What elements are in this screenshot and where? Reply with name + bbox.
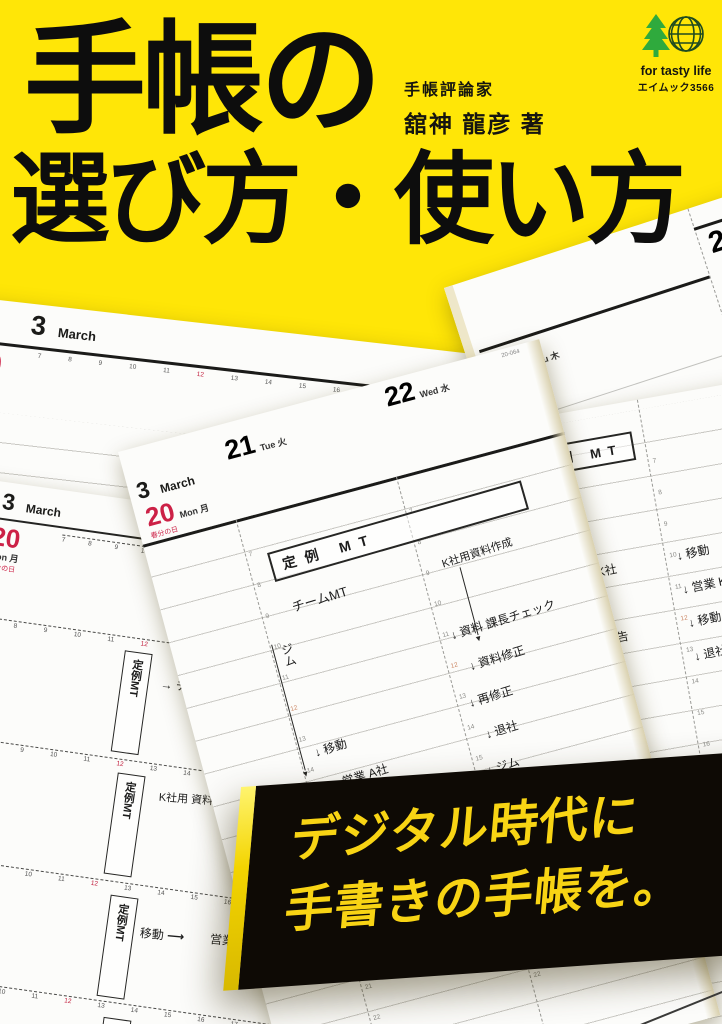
entry-text: 定例MT xyxy=(110,902,131,942)
hour-tick: 16 xyxy=(702,740,710,748)
hour-tick: 11 xyxy=(107,636,115,644)
hour-tick: 15 xyxy=(190,894,198,902)
hour-tick: 11 xyxy=(83,756,91,764)
hour-tick: 8 xyxy=(88,540,93,547)
hour-tick: 7 xyxy=(61,536,66,543)
hour-tick: 13 xyxy=(97,1002,105,1010)
schedule-entry: 営業 K社 xyxy=(681,558,722,597)
month-name: March xyxy=(25,501,62,520)
hour-tick: 15 xyxy=(697,709,705,717)
hour-tick: 14 xyxy=(157,889,165,897)
month-name: March xyxy=(57,325,97,344)
hour-tick: 12 xyxy=(196,371,204,379)
handwritten-meeting-box: 定例MT xyxy=(104,772,146,877)
book-title-line2: 選び方・使い方 xyxy=(10,148,682,253)
hour-tick: 10 xyxy=(50,751,58,759)
hour-tick: 11 xyxy=(281,673,290,682)
hour-tick: 10 xyxy=(73,631,81,639)
hour-tick: 14 xyxy=(264,379,272,387)
hour-tick: 15 xyxy=(298,382,306,390)
hour-tick: 13 xyxy=(230,375,238,383)
hour-tick: 10 xyxy=(129,363,137,371)
day-number: 20 xyxy=(0,523,23,553)
hour-tick: 7 xyxy=(652,457,660,465)
hour-tick: 17 xyxy=(230,1021,238,1024)
handwritten-meeting-box: 定例MT xyxy=(111,650,153,755)
book-cover: 3 March 78910111213141516171819202122 20… xyxy=(0,0,722,1024)
hour-tick: 11 xyxy=(31,993,39,1001)
schedule-entry: 退社 xyxy=(693,625,722,664)
hour-tick: 16 xyxy=(197,1016,205,1024)
handwritten-meeting-box: 定例MT xyxy=(88,1017,131,1024)
hour-tick: 13 xyxy=(124,885,132,893)
entry-text: 移動 xyxy=(139,924,185,945)
hour-tick: 10 xyxy=(433,600,442,609)
schedule-entry: 移動 xyxy=(687,592,722,631)
day-20-block: 20 Mon 月 春分の日 xyxy=(0,347,3,403)
hour-tick: 12 xyxy=(140,640,148,648)
month-number: 3 xyxy=(1,488,17,516)
hour-tick: 9 xyxy=(425,569,434,578)
hour-tick: 9 xyxy=(20,747,25,754)
hour-tick: 7 xyxy=(37,353,41,360)
hour-tick: 9 xyxy=(265,612,274,621)
divider xyxy=(479,275,710,353)
entry-text: 定例MT xyxy=(125,658,146,698)
author-block: 手帳評論家 舘神 龍彦 著 xyxy=(404,76,546,139)
hour-tick: 14 xyxy=(691,677,699,685)
hour-tick: 12 xyxy=(90,880,98,888)
hour-tick: 8 xyxy=(68,356,72,363)
hour-tick: 7 xyxy=(248,550,257,559)
month-header: 3 March xyxy=(29,310,98,348)
hour-tick: 9 xyxy=(663,520,671,528)
publisher-series: エイムック3566 xyxy=(628,79,722,94)
hour-tick: 12 xyxy=(116,760,124,768)
handwritten-meeting-box: 定例MT xyxy=(97,895,139,1000)
catchphrase-text: デジタル時代に 手書きの手帳を。 xyxy=(282,777,693,945)
hour-tick: 9 xyxy=(98,360,102,367)
hour-tick: 10 xyxy=(0,988,6,996)
hour-tick: 11 xyxy=(58,875,66,883)
hour-tick: 21 xyxy=(364,983,373,992)
hour-tick: 13 xyxy=(298,735,307,744)
hour-tick: 10 xyxy=(24,871,32,879)
hour-tick: 12 xyxy=(290,704,299,713)
hour-tick: 14 xyxy=(183,770,191,778)
publisher-logo: for tasty life エイムック3566 xyxy=(628,12,722,94)
entry-text: 定例MT xyxy=(118,780,139,820)
hour-tick: 8 xyxy=(658,488,666,496)
day-20-block: 20 Mon 月 春分の日 xyxy=(0,523,23,576)
divider xyxy=(694,174,722,231)
publisher-tagline: for tasty life xyxy=(628,64,722,78)
hour-tick: 15 xyxy=(164,1011,172,1019)
hour-tick: 9 xyxy=(43,627,48,634)
author-name: 舘神 龍彦 著 xyxy=(404,105,546,139)
hour-tick: 14 xyxy=(130,1007,138,1015)
hour-tick: 8 xyxy=(257,581,266,590)
day-number: 20 xyxy=(0,347,3,381)
book-title-line1: 手帳の xyxy=(24,16,378,144)
hour-tick: 11 xyxy=(163,367,170,375)
author-role: 手帳評論家 xyxy=(404,76,546,100)
hour-tick: 9 xyxy=(114,544,119,551)
month-header: 3 March xyxy=(1,488,64,523)
month-number: 3 xyxy=(29,310,47,342)
hour-tick: 8 xyxy=(13,623,18,630)
hour-tick: 12 xyxy=(64,997,72,1005)
hour-tick: 13 xyxy=(149,765,157,773)
tree-globe-logo-icon xyxy=(640,12,712,58)
